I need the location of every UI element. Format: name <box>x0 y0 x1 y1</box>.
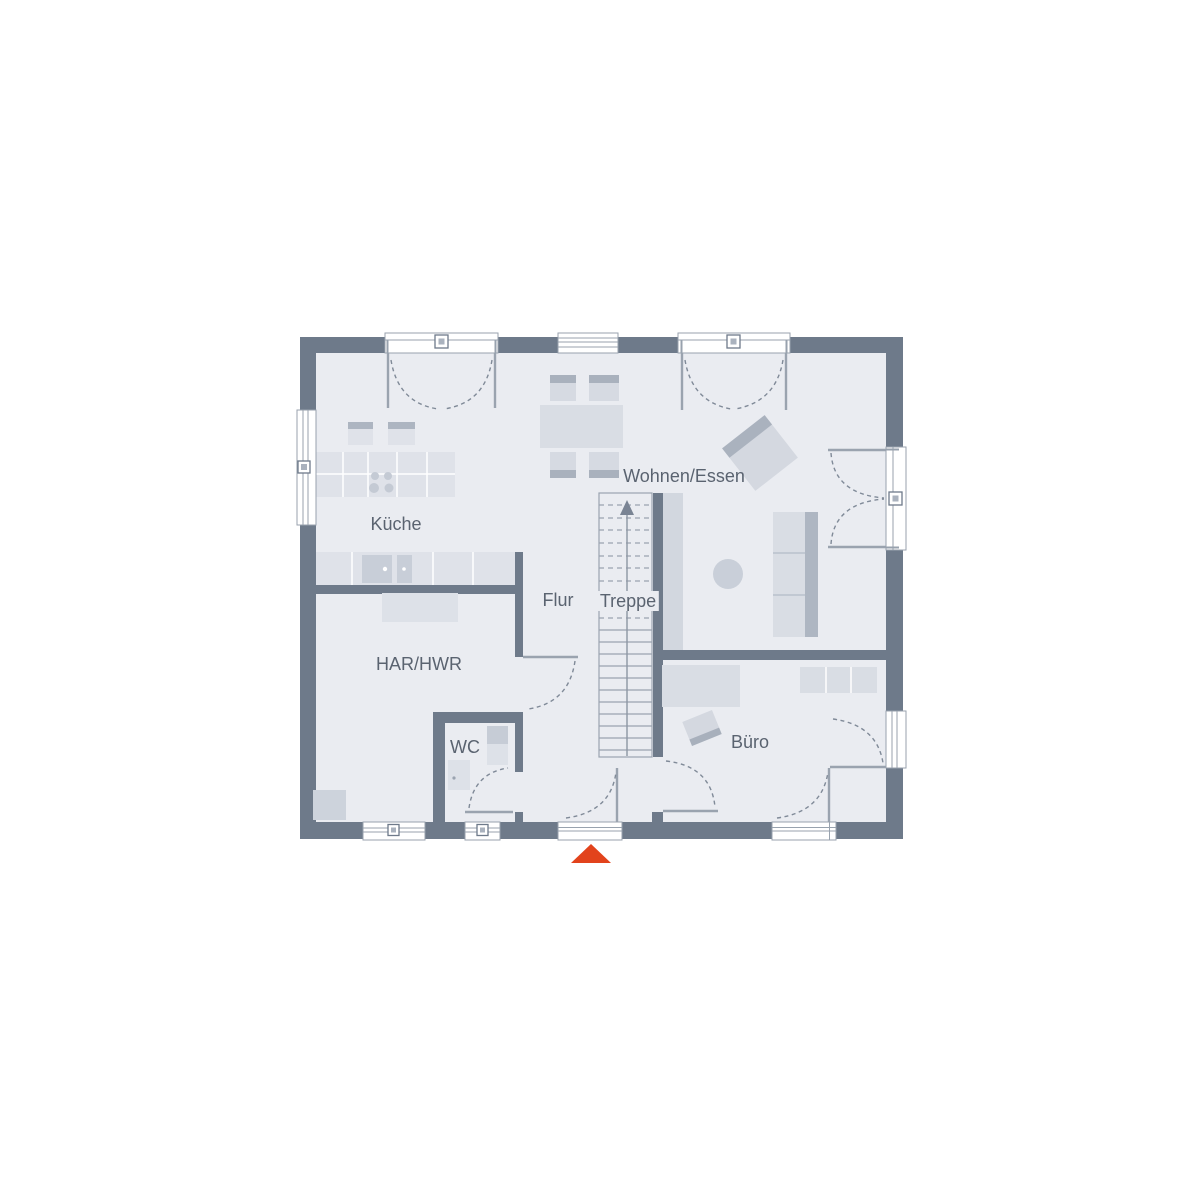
window-left <box>297 410 316 525</box>
wall-wc-top <box>433 712 517 723</box>
room-label-kueche: Küche <box>370 515 421 533</box>
window-wc-bottom <box>465 822 500 840</box>
desk <box>662 665 740 707</box>
window-har-bottom <box>363 822 425 840</box>
utility-cabinet <box>382 593 458 622</box>
shelf <box>800 667 877 693</box>
room-label-har-hwr: HAR/HWR <box>376 655 462 673</box>
kitchen-island <box>316 452 455 497</box>
floor-plan-canvas: Küche Wohnen/Essen Flur Treppe HAR/HWR W… <box>0 0 1200 1200</box>
entrance-marker <box>571 844 611 863</box>
toilet <box>487 726 508 765</box>
window-top-center <box>558 333 618 353</box>
wall-stair-side <box>653 493 663 757</box>
wall-wc-left <box>433 712 445 822</box>
wall-stair-stub <box>652 812 663 822</box>
sideboard <box>663 493 683 650</box>
washbasin <box>448 760 470 790</box>
wall-wc-right-stub <box>515 812 523 822</box>
sofa <box>773 512 818 637</box>
wall-kueche-har <box>305 585 523 594</box>
room-label-buero: Büro <box>731 733 769 751</box>
sink <box>362 555 392 583</box>
dining-table <box>540 405 623 448</box>
storage-box <box>313 790 346 820</box>
wall-wohnen-buero <box>655 650 886 660</box>
room-label-wc: WC <box>450 738 480 756</box>
room-label-treppe: Treppe <box>597 591 659 611</box>
room-label-flur: Flur <box>543 591 574 609</box>
wall-har-flur-upper <box>515 552 523 657</box>
staircase <box>599 493 652 757</box>
kitchen-counter <box>316 552 515 585</box>
room-label-wohnen-essen: Wohnen/Essen <box>623 467 745 485</box>
side-table <box>713 559 743 589</box>
